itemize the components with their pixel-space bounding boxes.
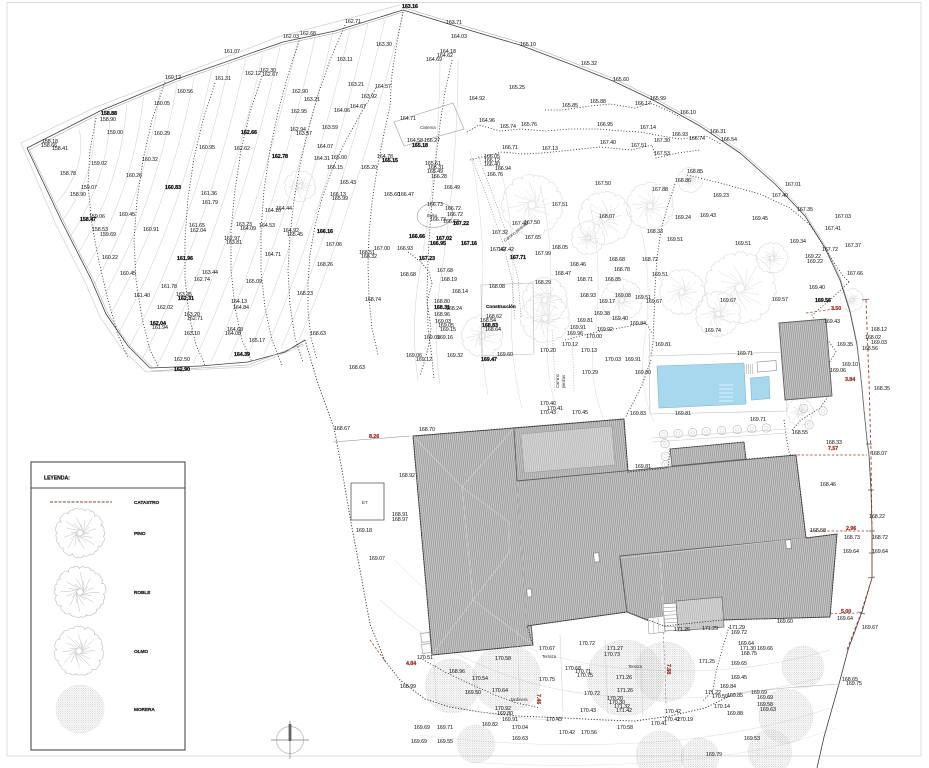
svg-text:168.22: 168.22 [869,514,885,520]
svg-text:165.15: 165.15 [327,165,343,171]
svg-text:170.50: 170.50 [712,694,728,700]
svg-text:168.58: 168.58 [810,528,826,534]
svg-text:162.90: 162.90 [292,89,308,95]
svg-text:169.32: 169.32 [447,353,463,359]
svg-text:168.55: 168.55 [792,430,808,436]
svg-text:170.54: 170.54 [472,676,488,682]
svg-text:169.57: 169.57 [772,297,788,303]
svg-text:167.68: 167.68 [437,268,453,274]
svg-text:158.41: 158.41 [52,146,68,152]
svg-text:171.26: 171.26 [674,627,690,633]
svg-text:162.62: 162.62 [234,146,250,152]
svg-text:169.81: 169.81 [675,411,691,417]
svg-text:162.12: 162.12 [245,71,261,77]
svg-text:169.91: 169.91 [502,717,518,723]
svg-text:167.06: 167.06 [326,242,342,248]
svg-text:158.88: 158.88 [101,111,117,117]
svg-text:160.05: 160.05 [154,101,170,107]
svg-text:160.56: 160.56 [177,89,193,95]
svg-text:164.53: 164.53 [259,223,275,229]
svg-text:158.78: 158.78 [60,171,76,177]
svg-text:170.04: 170.04 [512,725,528,731]
svg-text:169.92: 169.92 [597,327,613,333]
svg-text:Jardinera: Jardinera [510,697,528,702]
svg-text:169.43: 169.43 [700,213,716,219]
svg-text:165.43: 165.43 [340,180,356,186]
svg-text:162.78: 162.78 [272,154,288,160]
svg-text:7.57: 7.57 [828,446,838,452]
svg-text:MORERA: MORERA [134,707,155,713]
svg-text:168.19: 168.19 [441,277,457,283]
svg-text:169.67: 169.67 [720,298,736,304]
svg-text:169.08: 169.08 [615,293,631,299]
svg-text:170.75: 170.75 [577,673,593,679]
svg-text:169.50: 169.50 [465,690,481,696]
svg-text:169.82: 169.82 [482,722,498,728]
svg-text:169.22: 169.22 [807,259,823,265]
svg-text:169.84: 169.84 [630,321,646,327]
svg-text:168.92: 168.92 [399,473,415,479]
svg-text:169.65: 169.65 [731,661,747,667]
svg-text:169.60: 169.60 [497,352,513,358]
svg-text:168.68: 168.68 [400,272,416,278]
svg-text:170.12: 170.12 [562,342,578,348]
svg-text:169.23: 169.23 [713,193,729,199]
svg-text:167.03: 167.03 [835,214,851,220]
svg-text:167.71: 167.71 [510,255,526,261]
svg-text:170.75: 170.75 [539,677,555,683]
svg-text:166.93: 166.93 [672,132,688,138]
svg-text:piedras: piedras [561,375,566,388]
svg-text:LEYENDA:: LEYENDA: [44,476,70,482]
svg-text:170.51: 170.51 [417,655,433,661]
svg-text:160.29: 160.29 [154,131,170,137]
svg-text:170.43: 170.43 [546,717,562,723]
svg-text:CATASTRO: CATASTRO [134,500,160,506]
svg-text:168.46: 168.46 [570,262,586,268]
svg-text:3.84: 3.84 [845,377,855,383]
svg-text:165.20: 165.20 [361,165,377,171]
svg-text:169.40: 169.40 [612,316,628,322]
svg-text:166.10: 166.10 [680,110,696,116]
svg-text:167.37: 167.37 [845,243,861,249]
svg-text:170.73: 170.73 [604,652,620,658]
svg-text:169.85: 169.85 [727,693,743,699]
svg-text:7.46: 7.46 [535,694,541,704]
svg-text:165.32: 165.32 [581,61,597,67]
svg-text:167.51: 167.51 [552,202,568,208]
svg-text:166.95: 166.95 [430,241,446,247]
svg-text:ROBLE: ROBLE [134,590,151,596]
svg-text:167.66: 167.66 [847,271,863,277]
svg-text:161.40: 161.40 [134,293,150,299]
svg-text:OLMO: OLMO [134,649,148,655]
svg-text:169.55: 169.55 [437,739,453,745]
svg-text:164.09: 164.09 [240,226,256,232]
svg-text:169.64: 169.64 [872,549,888,555]
svg-text:166.16: 166.16 [317,229,333,235]
svg-text:159.07: 159.07 [81,185,97,191]
svg-text:167.35: 167.35 [797,207,813,213]
svg-text:168.96: 168.96 [434,312,450,318]
svg-text:163.10: 163.10 [184,331,200,337]
svg-text:165.45: 165.45 [287,232,303,238]
svg-text:164.06: 164.06 [334,108,350,114]
svg-text:164.84: 164.84 [233,305,249,311]
svg-text:166.31: 166.31 [710,129,726,135]
svg-text:170.58: 170.58 [495,656,511,662]
svg-text:170.72: 170.72 [579,641,595,647]
svg-text:169.81: 169.81 [577,318,593,324]
svg-text:169.47: 169.47 [481,357,497,363]
svg-text:168.74: 168.74 [365,297,381,303]
svg-text:166.93: 166.93 [397,246,413,252]
svg-text:164.96: 164.96 [479,118,495,124]
svg-text:169.66: 169.66 [757,646,773,652]
svg-text:ET: ET [362,500,368,505]
svg-text:169.53: 169.53 [744,736,760,742]
svg-text:165.60: 165.60 [613,77,629,83]
svg-text:170.00: 170.00 [586,334,602,340]
svg-text:165.25: 165.25 [509,85,525,91]
svg-text:169.80: 169.80 [635,370,651,376]
svg-text:169.16: 169.16 [437,335,453,341]
svg-text:168.12: 168.12 [871,327,887,333]
svg-text:167.41: 167.41 [825,226,841,232]
svg-text:160.12: 160.12 [165,75,181,81]
svg-text:169.67: 169.67 [862,625,878,631]
svg-text:169.84: 169.84 [720,684,736,690]
svg-text:166.47: 166.47 [398,192,414,198]
svg-text:168.70: 168.70 [419,427,435,433]
svg-text:Construcción: Construcción [486,304,516,310]
svg-text:169.81: 169.81 [655,342,671,348]
svg-text:159.00: 159.00 [107,130,123,136]
svg-text:161.79: 161.79 [202,200,218,206]
svg-text:169.07: 169.07 [369,556,385,562]
svg-text:168.68: 168.68 [609,257,625,263]
svg-text:160.45: 160.45 [120,271,136,277]
svg-text:166.71: 166.71 [502,145,518,151]
svg-text:167.30: 167.30 [654,138,670,144]
svg-text:162.04: 162.04 [190,228,206,234]
svg-text:168.99: 168.99 [400,684,416,690]
svg-text:167.99: 167.99 [535,251,551,257]
svg-text:164.67: 164.67 [350,104,366,110]
svg-text:168.63: 168.63 [310,331,326,337]
svg-text:167.50: 167.50 [595,181,611,187]
svg-text:167.32: 167.32 [492,230,508,236]
svg-text:169.74: 169.74 [705,328,721,334]
svg-text:162.74: 162.74 [194,277,210,283]
svg-text:164.08: 164.08 [225,331,241,337]
svg-text:158.90: 158.90 [100,117,116,123]
svg-text:169.75: 169.75 [846,681,862,687]
svg-text:160.95: 160.95 [199,145,215,151]
svg-text:168.35: 168.35 [874,386,890,392]
svg-text:169.69: 169.69 [411,739,427,745]
svg-text:168.75: 168.75 [741,651,757,657]
svg-text:168.72: 168.72 [872,535,888,541]
svg-text:166.49: 166.49 [444,185,460,191]
svg-text:161.07: 161.07 [224,49,240,55]
svg-text:168.33: 168.33 [647,229,663,235]
svg-text:165.18: 165.18 [412,143,428,149]
svg-text:169.18: 169.18 [356,528,372,534]
svg-text:169.69: 169.69 [757,695,773,701]
svg-text:168.67: 168.67 [334,426,350,432]
svg-text:170.03: 170.03 [605,357,621,363]
svg-text:Cisterna: Cisterna [420,125,436,130]
svg-text:167.40: 167.40 [600,140,616,146]
svg-text:4.84: 4.84 [406,661,416,667]
svg-text:168.32: 168.32 [361,254,377,260]
svg-text:3.50: 3.50 [831,306,841,312]
svg-text:163.21: 163.21 [348,82,364,88]
svg-text:162.03: 162.03 [283,34,299,40]
svg-text:162.90: 162.90 [174,367,190,373]
svg-text:163.11: 163.11 [337,57,353,63]
svg-text:162.31: 162.31 [178,296,194,302]
svg-text:169.06: 169.06 [830,368,846,374]
svg-text:169.51: 169.51 [735,241,751,247]
svg-text:166.74: 166.74 [689,136,705,142]
svg-text:171.26: 171.26 [617,688,633,694]
svg-text:168.86: 168.86 [675,178,691,184]
svg-text:170.42: 170.42 [665,709,681,715]
svg-text:166.76: 166.76 [487,172,503,178]
svg-text:169.51: 169.51 [667,237,683,243]
svg-text:160.32: 160.32 [142,157,158,163]
svg-text:164.07: 164.07 [317,144,333,150]
svg-text:5.00: 5.00 [841,609,851,615]
svg-text:168.97: 168.97 [392,517,408,523]
svg-text:161.36: 161.36 [201,191,217,197]
svg-text:170.41: 170.41 [651,721,667,727]
svg-text:160.26: 160.26 [126,173,142,179]
svg-text:169.15: 169.15 [440,327,456,333]
svg-text:165.10: 165.10 [520,42,536,48]
svg-text:165.17: 165.17 [249,338,265,344]
svg-text:168.93: 168.93 [580,293,596,299]
svg-text:165.00: 165.00 [331,155,347,161]
svg-text:170.42: 170.42 [559,730,575,736]
svg-text:168.47: 168.47 [555,271,571,277]
svg-text:170.13: 170.13 [581,348,597,354]
svg-text:168.07: 168.07 [599,214,615,220]
svg-text:168.29: 168.29 [535,280,551,286]
svg-text:168.78: 168.78 [614,267,630,273]
svg-text:159.69: 159.69 [100,232,116,238]
svg-text:158.47: 158.47 [80,217,96,223]
svg-text:168.85: 168.85 [605,277,621,283]
svg-text:2.96: 2.96 [846,526,856,532]
svg-text:168.26: 168.26 [317,262,333,268]
svg-text:169.88: 169.88 [727,711,743,717]
svg-text:169.64: 169.64 [837,616,853,622]
svg-text:160.45: 160.45 [119,212,135,218]
svg-text:Camino: Camino [555,373,560,388]
svg-text:167.72: 167.72 [822,247,838,253]
svg-text:163.21: 163.21 [304,97,320,103]
svg-text:166.66: 166.66 [409,234,425,240]
svg-text:169.64: 169.64 [843,549,859,555]
svg-text:168.56: 168.56 [862,346,878,352]
svg-text:164.92: 164.92 [469,96,485,102]
svg-text:163.57: 163.57 [296,131,312,137]
svg-text:165.88: 165.88 [590,99,606,105]
svg-text:161.96: 161.96 [177,256,193,262]
svg-text:163.30: 163.30 [376,42,392,48]
svg-text:169.72: 169.72 [731,630,747,636]
svg-text:167.01: 167.01 [785,182,801,188]
svg-text:169.40: 169.40 [809,285,825,291]
svg-text:166.28: 166.28 [431,174,447,180]
svg-text:161.78: 161.78 [161,284,177,290]
svg-text:165.99: 165.99 [332,196,348,202]
svg-text:168.08: 168.08 [489,284,505,290]
svg-text:169.96: 169.96 [567,331,583,337]
svg-text:166.54: 166.54 [721,137,737,143]
svg-text:168.14: 168.14 [452,289,468,295]
svg-text:169.83: 169.83 [630,411,646,417]
svg-text:165.76: 165.76 [521,122,537,128]
svg-text:168.07: 168.07 [871,451,887,457]
svg-text:170.43: 170.43 [580,708,596,714]
svg-text:170.64: 170.64 [492,688,508,694]
svg-text:169.24: 169.24 [675,215,691,221]
svg-text:167.23: 167.23 [419,256,435,262]
svg-text:170.56: 170.56 [581,730,597,736]
svg-text:169.56: 169.56 [815,298,831,304]
svg-text:168.05: 168.05 [552,245,568,251]
svg-text:164.71: 164.71 [400,116,416,122]
svg-text:159.02: 159.02 [91,161,107,167]
svg-text:163.59: 163.59 [322,125,338,131]
svg-text:170.20: 170.20 [540,348,556,354]
svg-text:168.23: 168.23 [297,291,313,297]
svg-text:169.38: 169.38 [594,311,610,317]
svg-text:169.45: 169.45 [731,675,747,681]
svg-text:164.03: 164.03 [451,34,467,40]
svg-text:167.65: 167.65 [525,235,541,241]
svg-text:167.51: 167.51 [631,143,647,149]
svg-text:167.16: 167.16 [461,241,477,247]
svg-text:171.25: 171.25 [699,659,715,665]
svg-text:170.19: 170.19 [677,717,693,723]
svg-text:164.31: 164.31 [314,156,330,162]
svg-text:166.95: 166.95 [597,122,613,128]
svg-text:162.95: 162.95 [291,109,307,115]
svg-text:162.71: 162.71 [187,316,203,322]
svg-text:169.35: 169.35 [837,342,853,348]
svg-text:168.63: 168.63 [349,365,365,371]
svg-text:169.60: 169.60 [777,619,793,625]
svg-text:169.79: 169.79 [706,752,722,758]
svg-text:168.46: 168.46 [820,482,836,488]
svg-text:168.71: 168.71 [577,277,593,283]
svg-text:165.74: 165.74 [500,124,516,130]
svg-text:170.45: 170.45 [572,410,588,416]
svg-text:163.44: 163.44 [202,270,218,276]
svg-text:164.57: 164.57 [375,84,391,90]
svg-text:169.51: 169.51 [652,272,668,278]
svg-text:169.45: 169.45 [752,216,768,222]
svg-text:167.13: 167.13 [542,146,558,152]
svg-text:160.91: 160.91 [143,227,159,233]
svg-text:168.31: 168.31 [434,305,450,311]
svg-text:167.42: 167.42 [498,247,514,253]
svg-text:171.42: 171.42 [616,708,632,714]
svg-text:162.68: 162.68 [300,31,316,37]
svg-text:164.44: 164.44 [276,206,292,212]
svg-text:168.73: 168.73 [844,535,860,541]
svg-text:160.22: 160.22 [102,255,118,261]
svg-text:169.67: 169.67 [646,299,662,305]
svg-text:169.91: 169.91 [625,357,641,363]
svg-text:162.04: 162.04 [150,321,166,327]
svg-text:169.12: 169.12 [416,357,432,363]
svg-text:169.69: 169.69 [414,725,430,731]
svg-text:168.83: 168.83 [482,323,498,329]
svg-text:162.02: 162.02 [157,305,173,311]
svg-text:170.14: 170.14 [714,704,730,710]
svg-text:164.39: 164.39 [234,352,250,358]
svg-text:170.29: 170.29 [582,370,598,376]
svg-text:169.71: 169.71 [750,417,766,423]
svg-text:169.17: 169.17 [599,299,615,305]
svg-text:7.88: 7.88 [665,664,671,674]
svg-text:170.43: 170.43 [540,410,556,416]
svg-text:8.26: 8.26 [369,434,379,440]
svg-text:165.15: 165.15 [382,158,398,164]
svg-text:Terraza: Terraza [628,664,643,669]
svg-text:165.09: 165.09 [246,279,262,285]
svg-text:164.71: 164.71 [265,252,281,258]
svg-text:162.66: 162.66 [241,130,257,136]
svg-text:Terraza: Terraza [542,654,557,659]
svg-text:160.83: 160.83 [165,185,181,191]
svg-text:163.71: 163.71 [446,20,462,26]
svg-text:162.67: 162.67 [262,72,278,78]
svg-text:166.73: 166.73 [427,202,443,208]
svg-text:167.22: 167.22 [453,221,469,227]
svg-text:167.53: 167.53 [654,151,670,157]
svg-text:168.72: 168.72 [642,257,658,263]
svg-text:167.40: 167.40 [772,193,788,199]
svg-text:170.72: 170.72 [584,691,600,697]
svg-text:167.88: 167.88 [652,187,668,193]
svg-text:165.99: 165.99 [650,96,666,102]
svg-text:169.71: 169.71 [737,351,753,357]
svg-text:163.16: 163.16 [402,4,418,10]
svg-text:170.58: 170.58 [617,725,633,731]
svg-text:165.85: 165.85 [562,103,578,109]
svg-text:163.81: 163.81 [226,240,242,246]
svg-text:169.71: 169.71 [437,725,453,731]
svg-text:168.85: 168.85 [687,169,703,175]
svg-text:PINO: PINO [134,531,146,537]
svg-text:167.00: 167.00 [374,246,390,252]
svg-text:171.29: 171.29 [702,626,718,632]
svg-text:162.71: 162.71 [345,19,361,25]
svg-text:169.63: 169.63 [760,707,776,713]
svg-text:169.34: 169.34 [790,239,806,245]
svg-text:167.14: 167.14 [640,125,656,131]
svg-text:166.72: 166.72 [447,212,463,218]
svg-text:158.90: 158.90 [70,192,86,198]
svg-text:162.50: 162.50 [174,357,190,363]
